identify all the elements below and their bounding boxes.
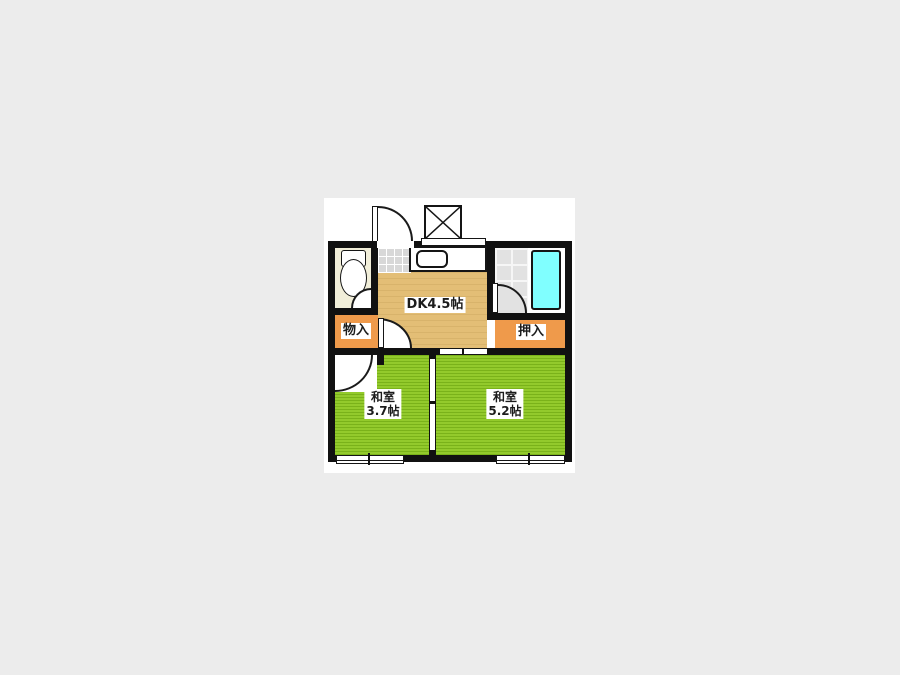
wall-mid-right <box>487 348 572 355</box>
washing-machine-pan-icon <box>424 205 462 240</box>
washitsu-left-name: 和室 <box>366 390 399 404</box>
wall-bath-bottom <box>487 313 572 320</box>
sliding-door-fusuma <box>430 359 435 450</box>
opening-center-tick <box>462 348 464 355</box>
kitchen-sink-icon <box>416 250 448 268</box>
window-right <box>496 455 565 464</box>
wall-toilet-bottom <box>328 308 378 315</box>
window-left <box>336 455 404 464</box>
label-washitsu-left: 和室 3.7帖 <box>364 389 401 419</box>
washitsu-right-size: 5.2帖 <box>488 404 521 418</box>
window-left-tick <box>368 453 370 465</box>
wall-toilet-right <box>371 241 378 318</box>
kitchen-window <box>421 238 486 246</box>
floor-plan-canvas: DK4.5帖 物入 押入 和室 3.7帖 和室 5.2帖 <box>324 198 575 473</box>
label-monoire: 物入 <box>341 323 371 339</box>
label-washitsu-right: 和室 5.2帖 <box>486 389 523 419</box>
window-right-tick <box>528 453 530 465</box>
dk-door-leaf <box>378 318 384 348</box>
entry-opening <box>377 241 414 248</box>
fusuma-center-tick <box>429 401 436 404</box>
label-oshiire: 押入 <box>516 324 546 340</box>
washitsu-right-name: 和室 <box>488 390 521 404</box>
door-jamb-stub <box>377 355 384 365</box>
entry-door-swing-arc <box>378 206 413 241</box>
wall-mid-left <box>328 348 440 355</box>
label-dk: DK4.5帖 <box>405 297 466 313</box>
washitsu-left-size: 3.7帖 <box>366 404 399 418</box>
kitchen-tile-floor <box>378 248 411 273</box>
bathtub-icon <box>531 250 561 310</box>
